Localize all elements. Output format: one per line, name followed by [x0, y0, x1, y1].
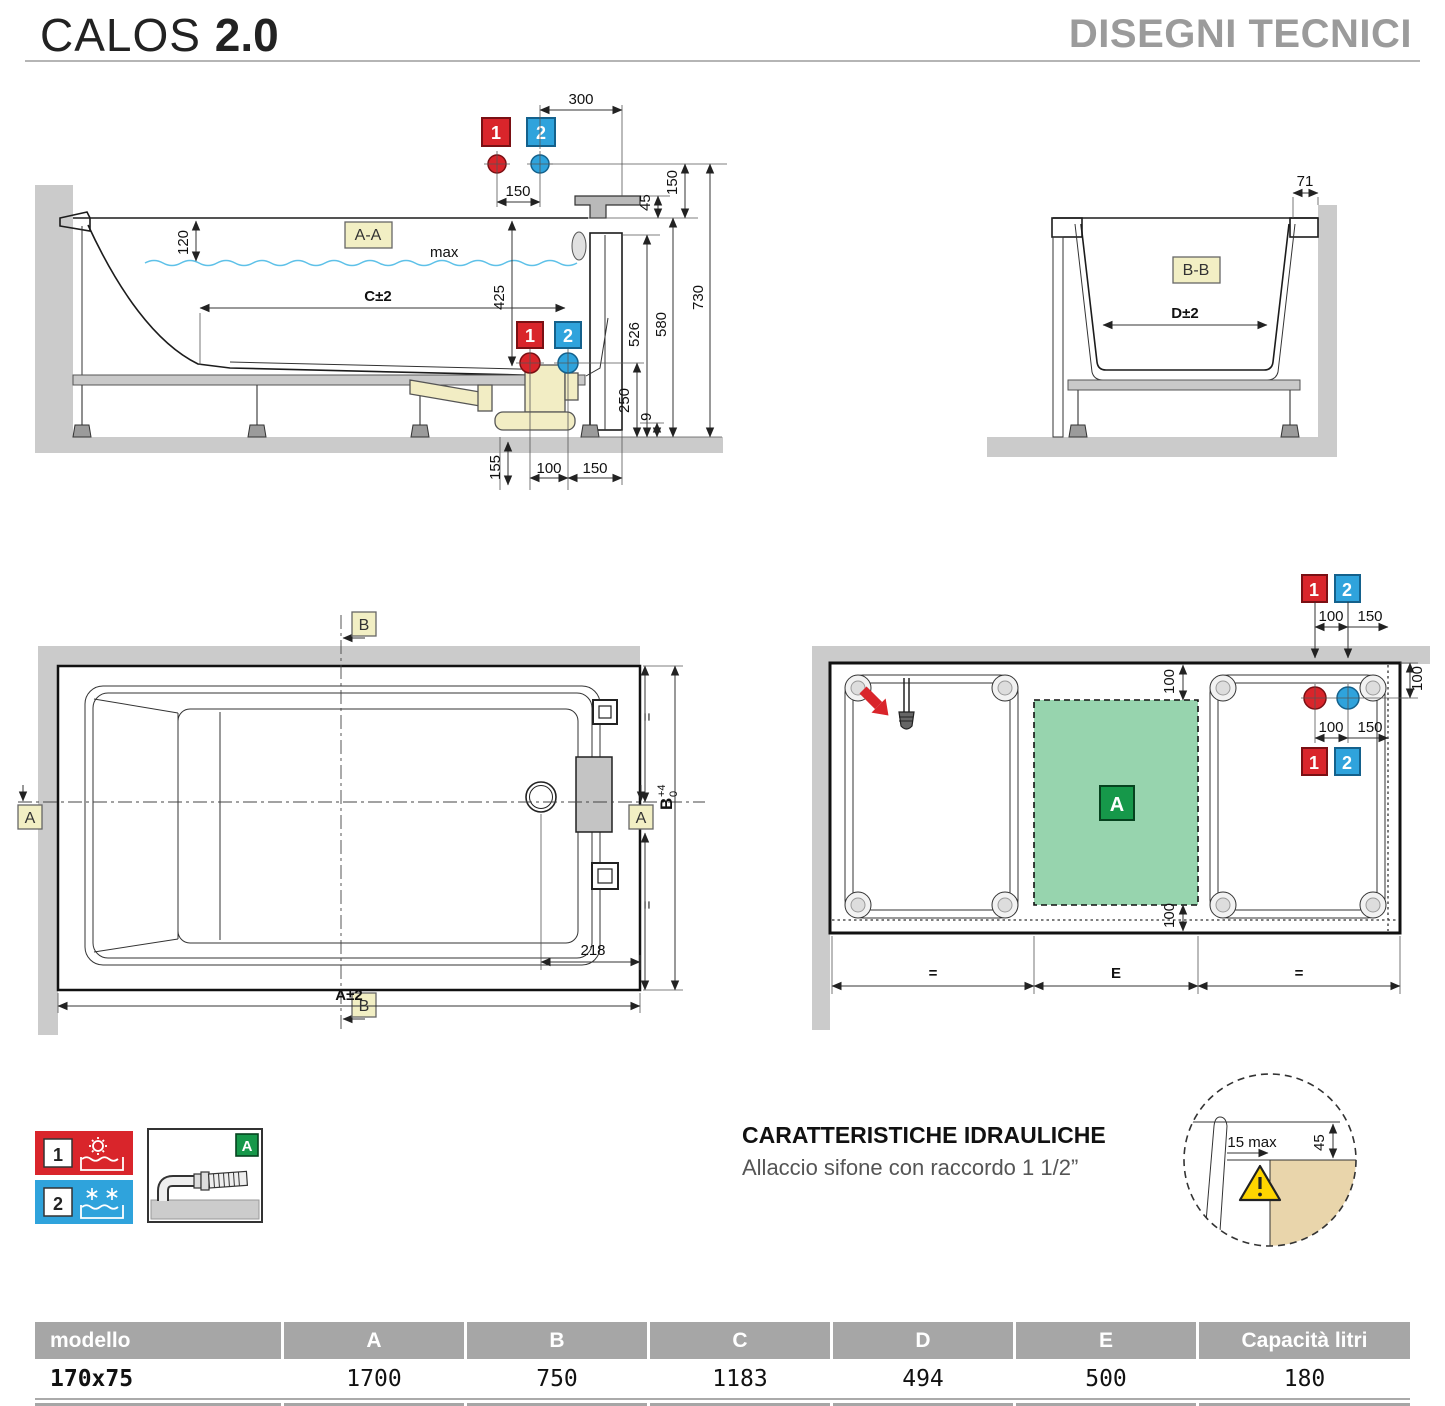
control-box	[576, 757, 612, 832]
wall-top	[812, 646, 1430, 664]
dim-eq-right: =	[1295, 965, 1304, 982]
marker-2-outside: 2	[1342, 580, 1352, 600]
spec-table-header: modello A B C D E Capacità litri	[35, 1322, 1410, 1359]
section-aa-drawing: max A-A 1	[30, 85, 745, 505]
header-d: D	[833, 1322, 1013, 1359]
header-a: A	[284, 1322, 464, 1359]
dim-120: 120	[175, 230, 192, 255]
edge-detail: 15 max 45	[1180, 1050, 1445, 1310]
dim-d: D±2	[1171, 305, 1198, 322]
header-e: E	[1016, 1322, 1196, 1359]
dim-eq-bottom: =	[639, 900, 656, 909]
dim-15-max: 15 max	[1227, 1134, 1277, 1151]
installation-drawing: A 1 2 100 150	[808, 560, 1445, 1030]
tile-wall-area	[1270, 1160, 1356, 1246]
dim-155: 155	[487, 455, 504, 480]
dim-100-inner: 100	[1318, 719, 1343, 736]
dim-730: 730	[690, 285, 707, 310]
dim-100-top: 100	[1318, 608, 1343, 625]
dim-100-bottom: 100	[536, 460, 561, 477]
dim-a: A±2	[335, 987, 362, 1004]
wall-left	[38, 646, 58, 1035]
page-title: DISEGNI TECNICI	[1069, 12, 1412, 57]
dim-526: 526	[626, 322, 643, 347]
header-capacita: Capacità litri	[1199, 1322, 1410, 1359]
dim-71: 71	[1297, 173, 1314, 190]
dim-150-bottom: 150	[582, 460, 607, 477]
faucet	[575, 196, 640, 218]
dim-b-group: B +4 0	[656, 784, 680, 810]
dim-e: E	[1111, 965, 1121, 982]
marker-1-outside: 1	[1309, 580, 1319, 600]
dim-9: 9	[638, 413, 655, 421]
drain	[526, 782, 556, 812]
value-d: 494	[833, 1361, 1013, 1397]
marker-a-left: A	[25, 810, 36, 827]
legend-hot-water: 1	[35, 1131, 133, 1175]
section-bb-drawing: B-B D±2 71	[985, 150, 1420, 470]
marker-2-top: 2	[536, 123, 546, 143]
water-max-label: max	[430, 244, 459, 261]
dim-b-sup: +4	[656, 784, 668, 797]
legend-cold-water: 2	[35, 1180, 133, 1224]
product-title: CALOS 2.0	[40, 8, 279, 62]
dim-eq-left: =	[929, 965, 938, 982]
wall-left	[35, 185, 73, 453]
tub-cross-section	[1052, 218, 1318, 437]
dim-218: 218	[580, 942, 605, 959]
value-a: 1700	[284, 1361, 464, 1397]
dim-150-top: 150	[505, 183, 530, 200]
header-modello: modello	[35, 1322, 281, 1359]
value-b: 750	[467, 1361, 647, 1397]
dim-250: 250	[616, 388, 633, 413]
wall-top	[38, 646, 640, 666]
dim-100-green-top: 100	[1161, 669, 1178, 694]
tap-markers-outside: 1 2 100 150	[1302, 575, 1388, 658]
support-frame	[1068, 380, 1300, 437]
tub-outer-edge	[58, 666, 640, 990]
hydraulics-note: CARATTERISTICHE IDRAULICHE Allaccio sifo…	[742, 1122, 1172, 1181]
legend: 1 2	[30, 1125, 310, 1230]
jet-top	[593, 700, 617, 724]
floor	[35, 437, 723, 453]
plan-view-drawing: B B A A = = B +4 0	[15, 605, 715, 1045]
hydraulics-title: CARATTERISTICHE IDRAULICHE	[742, 1122, 1172, 1149]
wall-right	[1318, 205, 1337, 457]
dim-c: C±2	[364, 288, 391, 305]
jet-bottom	[592, 863, 618, 889]
dim-150-inner: 150	[1357, 719, 1382, 736]
value-modello: 170x75	[35, 1361, 281, 1397]
dim-150-top: 150	[1357, 608, 1382, 625]
header-c: C	[650, 1322, 830, 1359]
legend-drain-area: A	[148, 1129, 262, 1222]
dim-150-right: 150	[664, 170, 681, 195]
dim-b-sub: 0	[668, 791, 680, 797]
floor	[987, 437, 1337, 457]
product-brand: CALOS	[40, 9, 201, 61]
hydraulics-subtitle: Allaccio sifone con raccordo 1 1/2”	[742, 1155, 1172, 1181]
marker-2-inside: 2	[1342, 753, 1352, 773]
dim-100-green-bottom: 100	[1161, 903, 1178, 928]
legend-1-label: 1	[53, 1145, 63, 1165]
value-capacita: 180	[1199, 1361, 1410, 1397]
legend-area-label: A	[242, 1138, 253, 1155]
marker-a-right: A	[636, 810, 647, 827]
dim-eq-top: =	[639, 712, 656, 721]
dim-b: B	[657, 798, 676, 810]
dim-300: 300	[568, 91, 593, 108]
service-area-label: A	[1110, 794, 1124, 816]
dim-580: 580	[653, 312, 670, 337]
tap-markers-top: 1 2	[482, 118, 555, 177]
product-version: 2.0	[215, 9, 279, 61]
section-aa-label: A-A	[355, 227, 382, 244]
table-bottom-rule	[35, 1398, 1410, 1400]
overflow	[572, 232, 586, 260]
wall-left	[812, 646, 830, 1030]
technical-drawing-page: CALOS 2.0 DISEGNI TECNICI max	[0, 0, 1445, 1406]
dim-100-right: 100	[1409, 666, 1426, 691]
section-bb-label: B-B	[1183, 262, 1210, 279]
marker-2-inner: 2	[563, 326, 573, 346]
dim-45-detail: 45	[1311, 1134, 1328, 1151]
value-c: 1183	[650, 1361, 830, 1397]
marker-1-inner: 1	[525, 326, 535, 346]
marker-b-top: B	[359, 617, 370, 634]
header-divider	[25, 60, 1420, 62]
dim-45: 45	[637, 194, 654, 211]
legend-2-label: 2	[53, 1194, 63, 1214]
spec-table-row: 170x75 1700 750 1183 494 500 180	[35, 1361, 1410, 1397]
marker-1-inside: 1	[1309, 753, 1319, 773]
spec-table: modello A B C D E Capacità litri 170x75 …	[35, 1322, 1410, 1406]
dim-425: 425	[491, 285, 508, 310]
header-b: B	[467, 1322, 647, 1359]
value-e: 500	[1016, 1361, 1196, 1397]
marker-1-top: 1	[491, 123, 501, 143]
